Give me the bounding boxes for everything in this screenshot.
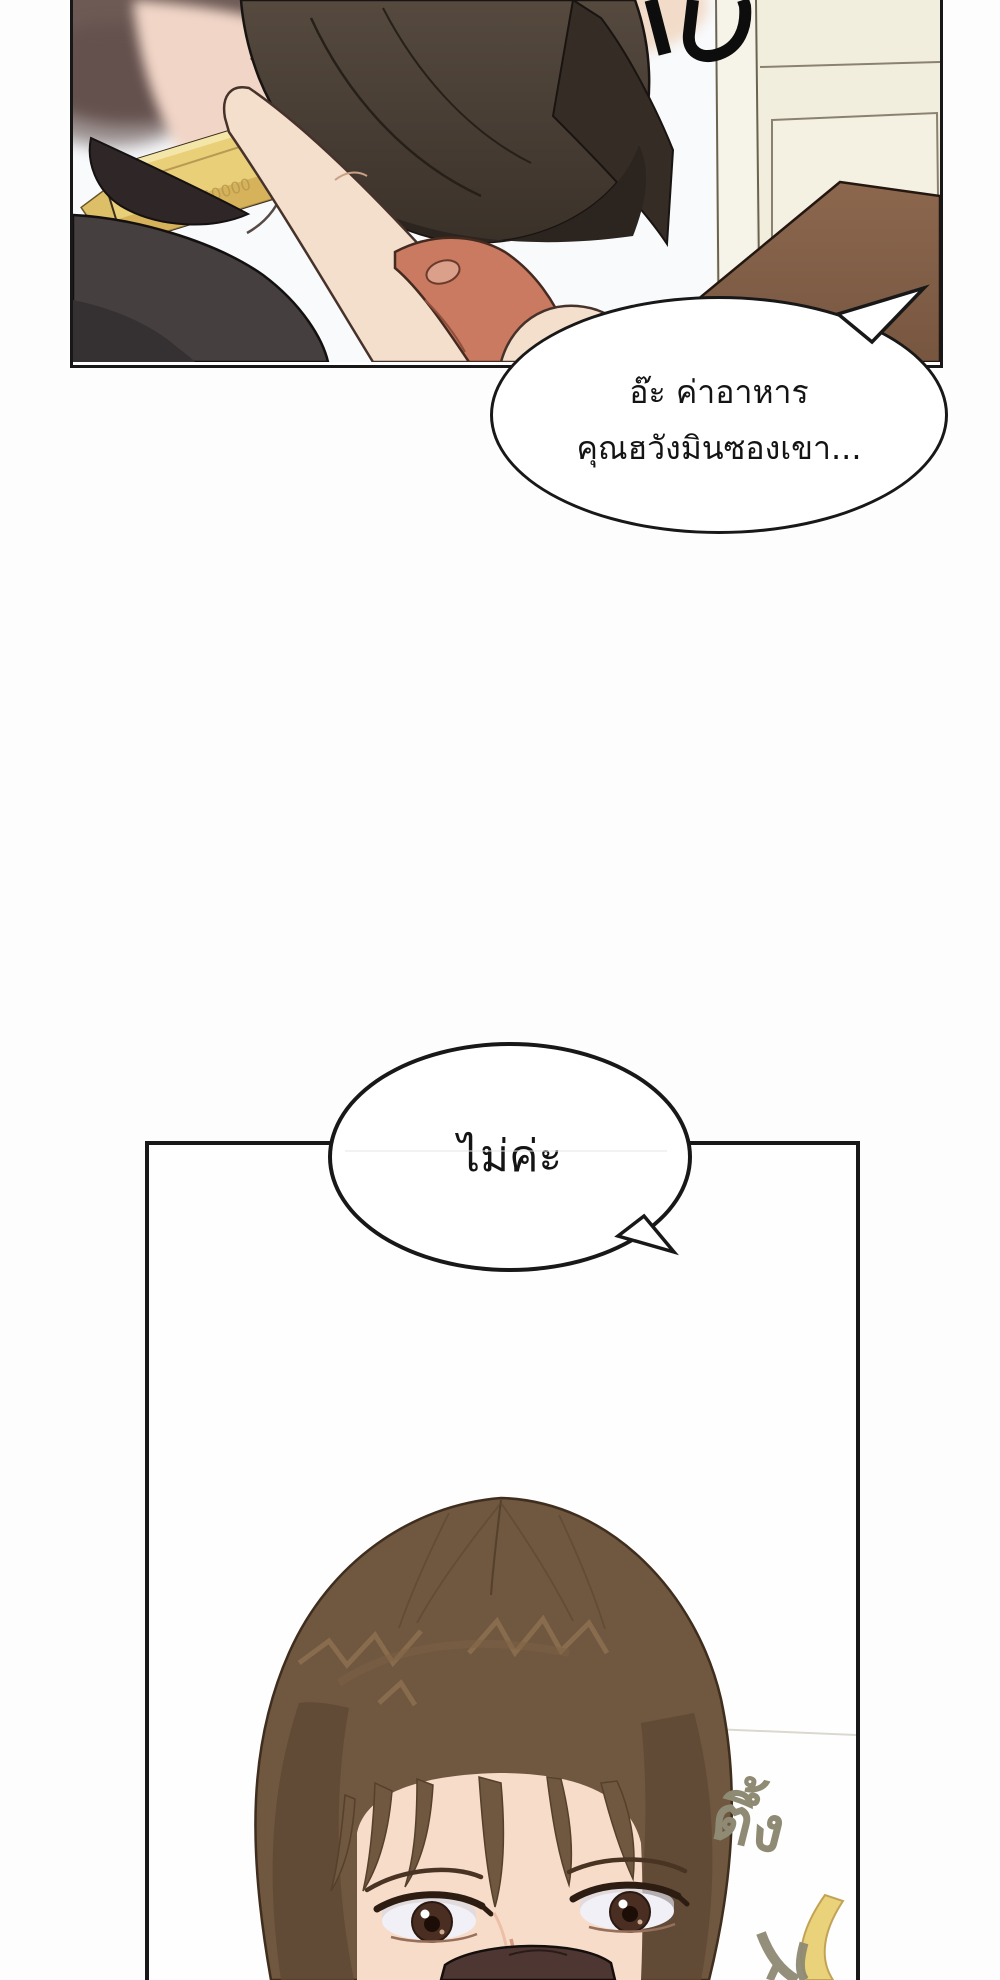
speech-bubble-1-text: อ๊ะ ค่าอาหาร คุณฮวังมินซองเขา... xyxy=(576,354,861,476)
speech-bubble-2-text: ไม่ค่ะ xyxy=(458,1126,562,1188)
bubble1-line1: อ๊ะ ค่าอาหาร xyxy=(576,364,861,420)
bubble2-artifact-line xyxy=(345,1150,667,1152)
comic-page: 50000 xyxy=(0,0,1000,1980)
bubble1-line2: คุณฮวังมินซองเขา... xyxy=(576,420,861,476)
speech-bubble-2-tail xyxy=(610,1208,688,1264)
speech-bubble-1-tail xyxy=(826,266,942,352)
